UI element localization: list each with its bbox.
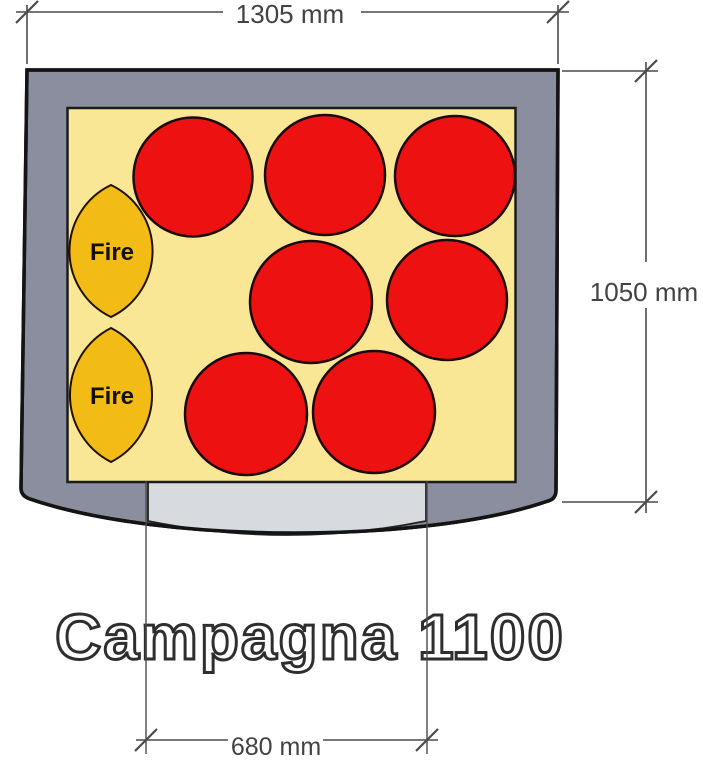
- oven-plan-diagram: Campagna 1100 FireFire: [0, 0, 703, 760]
- pizza-circle: [250, 241, 372, 363]
- pizza-circle: [134, 118, 253, 237]
- fire-label: Fire: [90, 239, 134, 266]
- opening-dimension-label: 680 mm: [206, 734, 346, 760]
- depth-dimension-label: 1050 mm: [582, 278, 703, 306]
- oven-plan-svg: FireFire: [0, 0, 703, 760]
- pizza-circle: [185, 353, 307, 475]
- pizza-circle: [395, 116, 515, 236]
- pizza-circle: [265, 115, 385, 235]
- pizza-circle: [313, 351, 435, 473]
- pizza-circle: [387, 240, 507, 360]
- fire-label: Fire: [90, 383, 134, 410]
- width-dimension-label: 1305 mm: [210, 1, 370, 27]
